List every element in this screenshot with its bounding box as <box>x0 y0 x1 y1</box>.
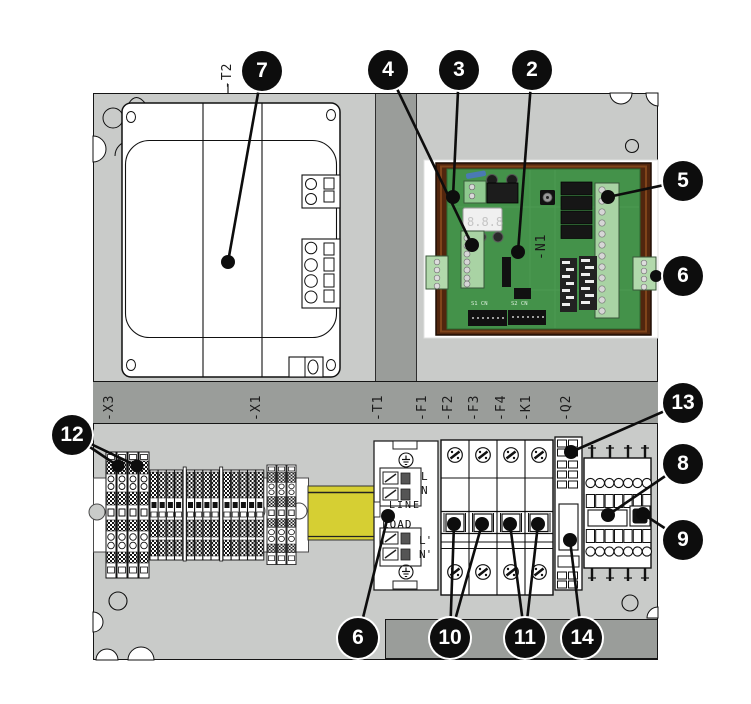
callout-3: 3 <box>439 50 479 90</box>
label-t2: -T2 <box>220 63 235 89</box>
filter-label-line: LINE <box>389 500 421 511</box>
terminal-group-small <box>267 465 296 565</box>
label-f3: -F3 <box>467 395 482 421</box>
din-rail-yellow <box>308 486 375 540</box>
filter-label-n-out: N' <box>419 548 432 561</box>
filter-label-l: L <box>421 470 428 483</box>
label-q2: -Q2 <box>559 395 574 421</box>
callout-6-pcb: 6 <box>663 256 703 296</box>
callout-7: 7 <box>242 51 282 91</box>
label-f1: -F1 <box>415 395 430 421</box>
diagram-linework: 8.8.8 S1 CN <box>0 0 751 704</box>
label-t1: -T1 <box>371 395 386 421</box>
pcb-silk-row2: S2 CN <box>511 301 528 307</box>
panel-layout-figure: 8.8.8 S1 CN <box>0 0 751 704</box>
callout-11: 11 <box>505 618 545 658</box>
terminal-group-x1 <box>150 467 264 561</box>
label-x1: -X1 <box>249 395 264 421</box>
pcb-pin-header <box>502 257 511 287</box>
t2-terminal-upper <box>302 175 340 208</box>
relay-k1 <box>555 437 582 590</box>
callout-14: 14 <box>562 618 602 658</box>
label-f4: -F4 <box>494 395 509 421</box>
callout-4: 4 <box>368 50 408 90</box>
label-k1: -K1 <box>519 395 534 421</box>
filter-label-n: N <box>421 484 428 497</box>
callout-10: 10 <box>430 618 470 658</box>
t2-terminal-lower <box>302 239 340 308</box>
pcb-terminal-small <box>464 181 486 203</box>
filter-label-l-out: L' <box>419 534 432 547</box>
din-rail-zone <box>89 452 375 578</box>
label-x3: -X3 <box>102 395 117 421</box>
pcb-connector-small <box>514 288 531 299</box>
pcb-silk-row1: S1 CN <box>471 301 488 307</box>
callout-2: 2 <box>512 50 552 90</box>
pcb-relay-single <box>487 183 518 203</box>
callout-6-filter: 6 <box>338 618 378 658</box>
terminal-group-x3 <box>106 452 149 578</box>
pcb-photo-n1: 8.8.8 S1 CN <box>424 160 658 338</box>
pcb-label-n1: -N1 <box>534 234 549 260</box>
t2-bottom-terminal <box>289 357 323 377</box>
label-f2: -F2 <box>441 395 456 421</box>
callout-13: 13 <box>663 383 703 423</box>
callout-8: 8 <box>663 444 703 484</box>
filter-label-load: LOAD <box>382 518 413 531</box>
callout-9: 9 <box>663 520 703 560</box>
callout-12: 12 <box>52 415 92 455</box>
pcb-display-digits: 8.8.8 <box>467 215 503 229</box>
callout-5: 5 <box>663 161 703 201</box>
